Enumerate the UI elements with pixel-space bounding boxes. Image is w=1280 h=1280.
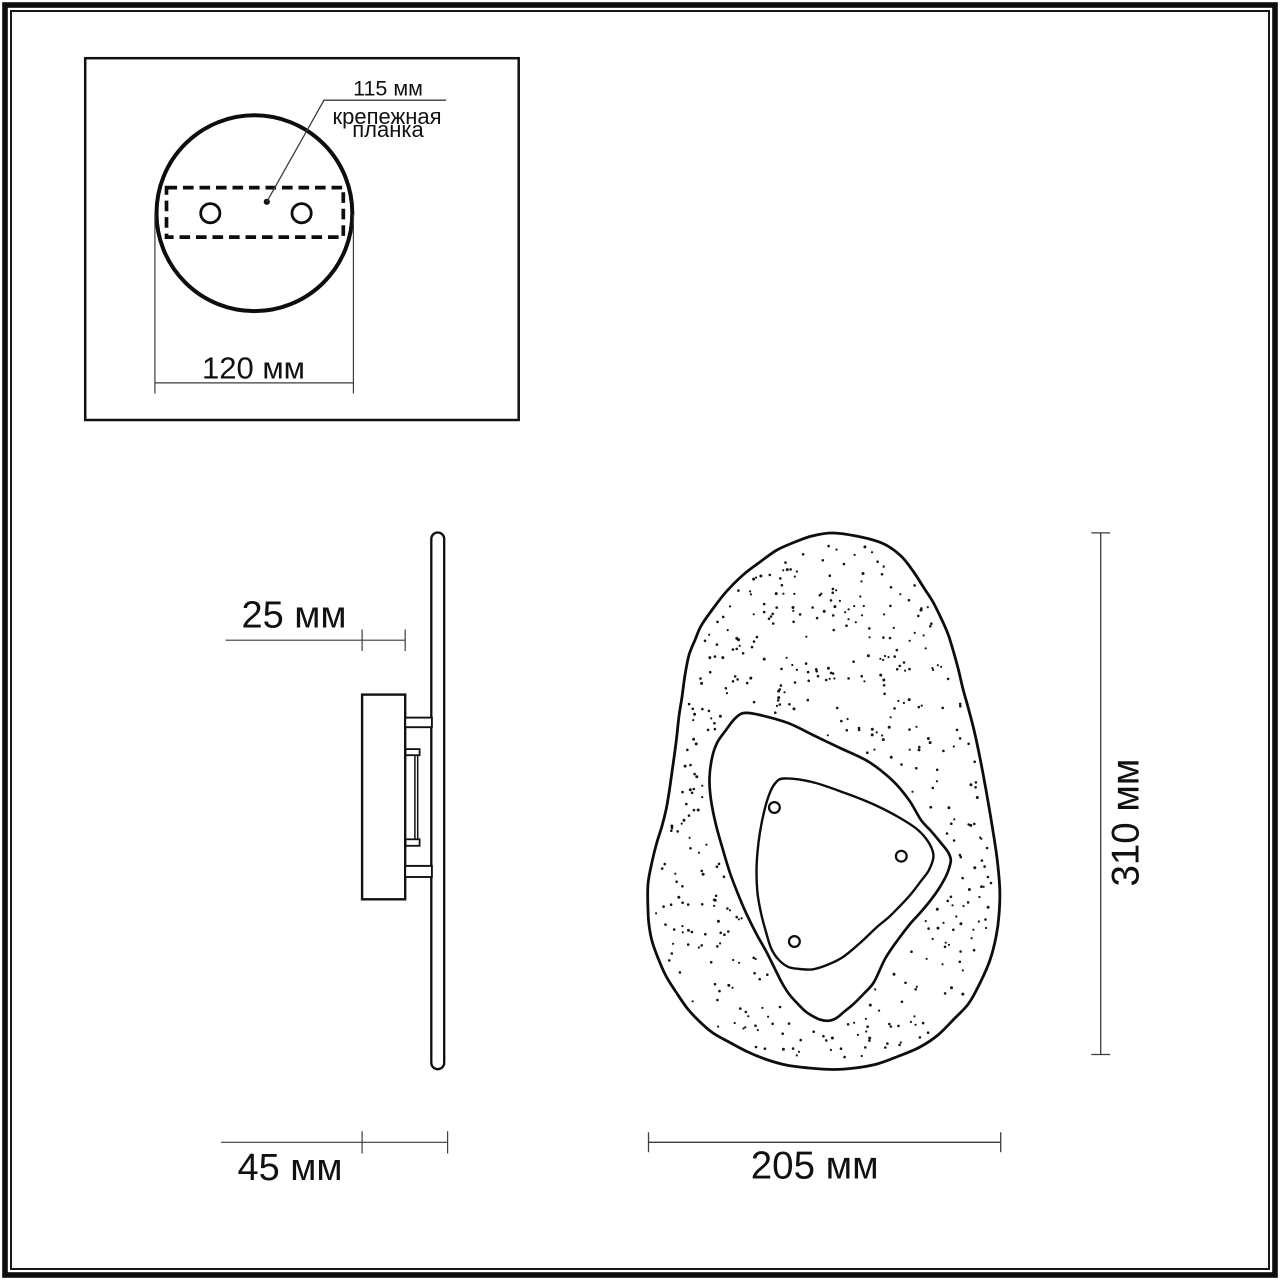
svg-text:120 мм: 120 мм: [202, 350, 305, 385]
svg-text:310 мм: 310 мм: [1105, 759, 1148, 887]
svg-text:45 мм: 45 мм: [237, 1147, 342, 1189]
svg-text:планка: планка: [352, 117, 424, 142]
svg-text:205 мм: 205 мм: [751, 1145, 879, 1188]
svg-text:25 мм: 25 мм: [241, 595, 346, 637]
svg-text:115 мм: 115 мм: [353, 77, 423, 101]
